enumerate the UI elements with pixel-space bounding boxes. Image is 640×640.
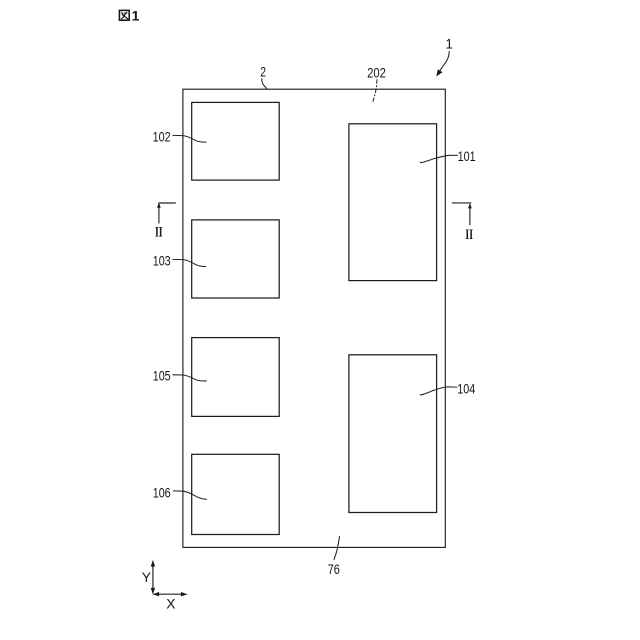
svg-text:X: X xyxy=(166,597,175,612)
svg-text:104: 104 xyxy=(457,381,475,396)
svg-text:101: 101 xyxy=(458,149,476,164)
svg-text:II: II xyxy=(465,227,473,243)
svg-text:II: II xyxy=(155,225,163,241)
svg-text:102: 102 xyxy=(153,129,171,144)
svg-text:2: 2 xyxy=(260,65,266,80)
svg-text:105: 105 xyxy=(153,368,171,383)
svg-text:1: 1 xyxy=(445,36,453,51)
svg-text:Y: Y xyxy=(142,570,151,585)
svg-text:76: 76 xyxy=(328,562,340,577)
svg-text:106: 106 xyxy=(153,486,171,501)
svg-text:103: 103 xyxy=(153,254,171,269)
svg-text:1: 1 xyxy=(132,8,140,24)
svg-text:202: 202 xyxy=(367,66,386,81)
